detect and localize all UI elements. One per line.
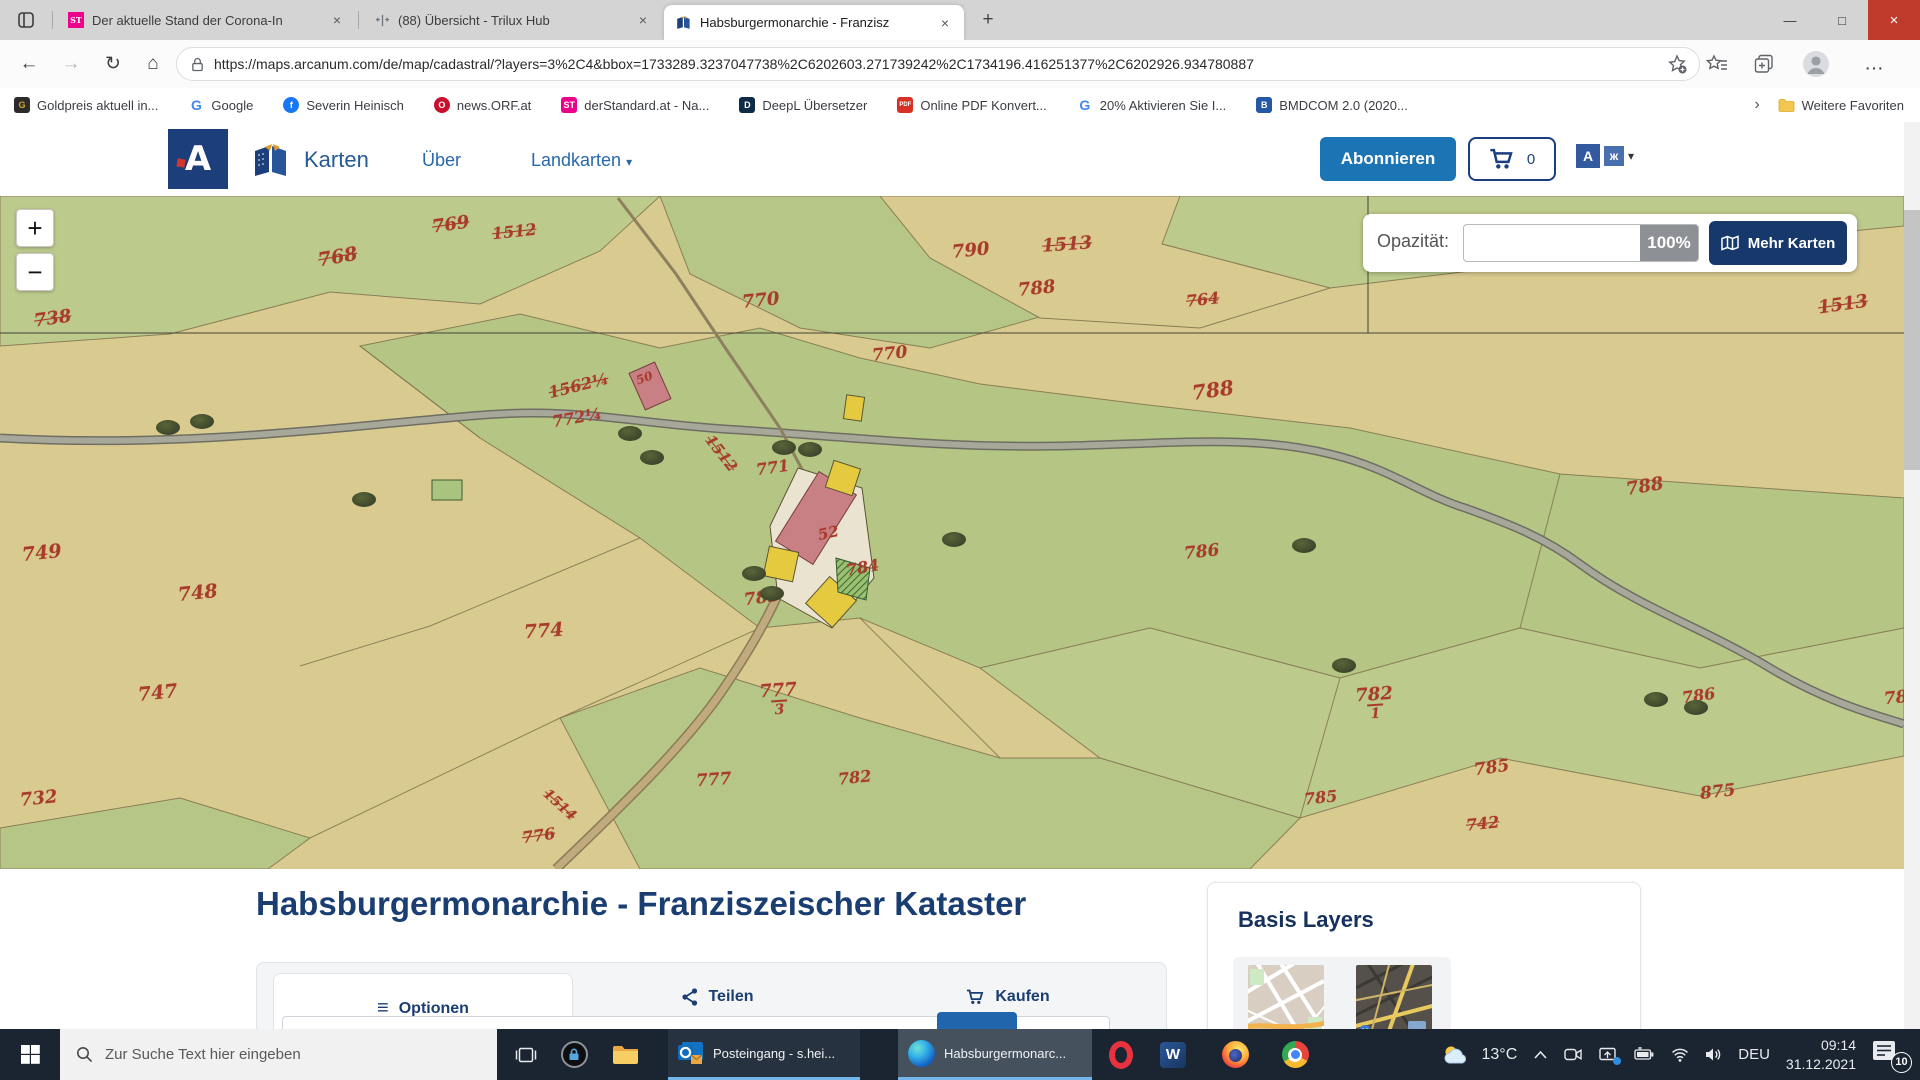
home-button[interactable]: ⌂ bbox=[138, 53, 168, 75]
bookmark-item[interactable]: fSeverin Heinisch bbox=[283, 97, 404, 113]
tab-separator bbox=[358, 11, 359, 29]
bookmark-item[interactable]: PDFOnline PDF Konvert... bbox=[897, 97, 1046, 113]
close-window-button[interactable]: × bbox=[1868, 0, 1920, 40]
taskbar-window-edge-active[interactable]: Habsburgermonarc... bbox=[898, 1029, 1092, 1080]
tray-expand-icon[interactable] bbox=[1533, 1049, 1548, 1060]
more-favorites-label: Weitere Favoriten bbox=[1802, 98, 1904, 113]
arcanum-logo[interactable]: A bbox=[168, 129, 228, 189]
url-text: https://maps.arcanum.com/de/map/cadastra… bbox=[214, 56, 1667, 72]
bookmark-favicon: PDF bbox=[897, 97, 913, 113]
bookmark-label: Google bbox=[211, 98, 253, 113]
tab-teilen-label: Teilen bbox=[708, 988, 753, 1006]
cart-icon bbox=[1489, 148, 1515, 170]
volume-icon[interactable] bbox=[1705, 1047, 1722, 1062]
taskbar-search-placeholder: Zur Suche Text hier eingeben bbox=[105, 1046, 301, 1063]
bookmark-favicon: G bbox=[14, 97, 30, 113]
page-scrollbar[interactable] bbox=[1904, 122, 1920, 1029]
site-header: A Karten Über Landkarten ▾ Abonnieren 0 … bbox=[0, 122, 1904, 196]
chevron-down-icon: ▾ bbox=[626, 155, 632, 169]
collections-icon[interactable] bbox=[1754, 54, 1774, 74]
reload-button[interactable]: ↻ bbox=[98, 53, 128, 76]
bookmark-item[interactable]: G20% Aktivieren Sie I... bbox=[1077, 97, 1226, 113]
arcanum-favicon bbox=[676, 15, 692, 31]
trilux-favicon bbox=[374, 12, 390, 28]
lock-icon bbox=[191, 57, 204, 72]
cart-icon bbox=[966, 989, 985, 1005]
bookmark-label: DeepL Übersetzer bbox=[762, 98, 867, 113]
language-switcher[interactable]: A ж ▾ bbox=[1576, 144, 1634, 168]
clock-date: 31.12.2021 bbox=[1786, 1055, 1856, 1074]
new-tab-button[interactable]: + bbox=[974, 7, 1002, 35]
bookmark-favicon: f bbox=[283, 97, 299, 113]
opacity-panel: Opazität: 100% Mehr Karten bbox=[1363, 214, 1857, 272]
wifi-icon[interactable] bbox=[1671, 1048, 1689, 1062]
taskbar-search[interactable]: Zur Suche Text hier eingeben bbox=[60, 1029, 497, 1080]
more-maps-label: Mehr Karten bbox=[1748, 235, 1836, 252]
taskbar-window-label: Posteingang - s.hei... bbox=[713, 1046, 835, 1061]
cadastral-map-art bbox=[0, 196, 1904, 869]
notification-center[interactable]: 10 bbox=[1872, 1040, 1906, 1070]
taskbar-window-label: Habsburgermonarc... bbox=[944, 1046, 1066, 1061]
bookmark-label: BMDCOM 2.0 (2020... bbox=[1279, 98, 1408, 113]
start-button[interactable] bbox=[0, 1029, 60, 1080]
weather-cloud-icon bbox=[1442, 1044, 1472, 1066]
map-icon bbox=[1721, 235, 1740, 251]
favorites-bar-icon[interactable] bbox=[1706, 54, 1728, 74]
bookmark-item[interactable]: GGoldpreis aktuell in... bbox=[14, 97, 158, 113]
bookmark-label: Online PDF Konvert... bbox=[920, 98, 1046, 113]
zoom-out-button[interactable]: − bbox=[16, 253, 54, 291]
bookmarks-bar: GGoldpreis aktuell in...GGooglefSeverin … bbox=[0, 88, 1920, 122]
opacity-value: 100% bbox=[1640, 225, 1698, 261]
chevron-down-icon: ▾ bbox=[1628, 149, 1634, 163]
bookmark-label: 20% Aktivieren Sie I... bbox=[1100, 98, 1226, 113]
more-maps-button[interactable]: Mehr Karten bbox=[1709, 221, 1847, 265]
tab-separator bbox=[52, 11, 53, 29]
tab-title: (88) Übersicht - Trilux Hub bbox=[398, 13, 626, 28]
tab-title: Habsburgermonarchie - Franzisz bbox=[700, 15, 928, 30]
bookmark-favicon: O bbox=[434, 97, 450, 113]
minimize-button[interactable]: — bbox=[1764, 0, 1816, 40]
bookmark-label: derStandard.at - Na... bbox=[584, 98, 709, 113]
tab-title: Der aktuelle Stand der Corona-In bbox=[92, 13, 320, 28]
battery-icon[interactable] bbox=[1634, 1047, 1655, 1062]
forward-button[interactable]: → bbox=[56, 53, 86, 75]
task-view-button[interactable] bbox=[503, 1029, 549, 1080]
opacity-label: Opazität: bbox=[1377, 231, 1449, 252]
zoom-in-button[interactable]: + bbox=[16, 209, 54, 247]
file-explorer-icon[interactable] bbox=[602, 1029, 648, 1080]
firefox-icon[interactable] bbox=[1212, 1029, 1258, 1080]
taskbar-window-outlook[interactable]: Posteingang - s.hei... bbox=[668, 1029, 860, 1080]
folder-icon bbox=[1778, 98, 1795, 112]
tab-optionen-label: Optionen bbox=[399, 1000, 469, 1018]
opacity-slider[interactable]: 100% bbox=[1463, 224, 1699, 262]
site-brand[interactable]: Karten bbox=[252, 143, 369, 177]
browser-tab-1[interactable]: ST Der aktuelle Stand der Corona-In × bbox=[56, 0, 356, 40]
close-tab-icon[interactable]: × bbox=[634, 11, 652, 29]
more-favorites-button[interactable]: Weitere Favoriten bbox=[1778, 98, 1904, 113]
language-icon: A bbox=[1576, 144, 1600, 168]
maximize-button[interactable]: □ bbox=[1816, 0, 1868, 40]
page-title: Habsburgermonarchie - Franziszeischer Ka… bbox=[256, 885, 1026, 923]
meet-now-icon[interactable] bbox=[1564, 1047, 1583, 1062]
search-icon bbox=[76, 1046, 93, 1063]
nav-landkarten-label: Landkarten bbox=[531, 150, 621, 170]
edge-icon bbox=[908, 1040, 935, 1067]
map-canvas[interactable]: 7387687691512770790151378876415137707881… bbox=[0, 196, 1904, 869]
bookmark-favicon: D bbox=[739, 97, 755, 113]
basis-layers-card: Basis Layers U bbox=[1207, 882, 1641, 1029]
cart-button[interactable]: 0 bbox=[1468, 137, 1556, 181]
bookmark-item[interactable]: Onews.ORF.at bbox=[434, 97, 531, 113]
settings-menu-icon[interactable]: … bbox=[1864, 53, 1885, 76]
bookmark-item[interactable]: GGoogle bbox=[188, 97, 253, 113]
close-tab-icon[interactable]: × bbox=[936, 14, 954, 32]
word-icon[interactable]: W bbox=[1150, 1029, 1196, 1080]
tab-actions-icon bbox=[17, 11, 35, 29]
weather-temp: 13°C bbox=[1482, 1046, 1518, 1064]
bookmarks-overflow-icon[interactable]: › bbox=[1754, 96, 1759, 114]
add-favorite-icon[interactable] bbox=[1667, 54, 1687, 74]
language-icon-2: ж bbox=[1604, 146, 1624, 166]
cart-count: 0 bbox=[1527, 151, 1535, 168]
windows-logo-icon bbox=[21, 1045, 40, 1064]
weather-widget[interactable]: 13°C bbox=[1442, 1044, 1518, 1066]
bookmark-label: news.ORF.at bbox=[457, 98, 531, 113]
clock[interactable]: 09:14 31.12.2021 bbox=[1786, 1036, 1856, 1074]
basis-layer-satellite-thumbnail[interactable]: U bbox=[1356, 965, 1432, 1029]
opera-icon[interactable] bbox=[1098, 1029, 1144, 1080]
tab-kaufen-label: Kaufen bbox=[995, 988, 1049, 1006]
nav-about[interactable]: Über bbox=[422, 150, 461, 171]
outlook-icon bbox=[678, 1041, 704, 1065]
maps-book-icon bbox=[252, 143, 292, 177]
notification-badge: 10 bbox=[1891, 1052, 1912, 1073]
close-tab-icon[interactable]: × bbox=[328, 11, 346, 29]
bookmark-favicon: G bbox=[1077, 97, 1093, 113]
basis-layers-title: Basis Layers bbox=[1238, 907, 1374, 933]
brand-label: Karten bbox=[304, 147, 369, 173]
share-icon bbox=[682, 988, 698, 1006]
bookmark-item[interactable]: DDeepL Übersetzer bbox=[739, 97, 867, 113]
clock-time: 09:14 bbox=[1786, 1036, 1856, 1055]
browser-toolbar: ← → ↻ ⌂ https://maps.arcanum.com/de/map/… bbox=[0, 40, 1920, 88]
basis-layers-list: U bbox=[1233, 957, 1451, 1029]
derstandard-favicon: ST bbox=[68, 12, 84, 28]
system-tray: 13°C DEU 09:14 31.12.2021 10 bbox=[1442, 1029, 1920, 1080]
logo-red-dot bbox=[176, 158, 185, 167]
keepass-icon[interactable] bbox=[551, 1029, 597, 1080]
cast-status-icon[interactable] bbox=[1599, 1047, 1618, 1063]
scrollbar-thumb[interactable] bbox=[1904, 210, 1920, 470]
bookmark-favicon: ST bbox=[561, 97, 577, 113]
basis-layer-street-thumbnail[interactable] bbox=[1248, 965, 1324, 1029]
profile-avatar[interactable] bbox=[1802, 50, 1830, 78]
options-submit-button[interactable] bbox=[937, 1012, 1017, 1029]
bookmark-label: Severin Heinisch bbox=[306, 98, 404, 113]
cast-status-dot bbox=[1613, 1057, 1621, 1065]
subscribe-button[interactable]: Abonnieren bbox=[1320, 137, 1456, 181]
chrome-icon[interactable] bbox=[1272, 1029, 1318, 1080]
bookmark-item[interactable]: STderStandard.at - Na... bbox=[561, 97, 709, 113]
browser-tab-active[interactable]: Habsburgermonarchie - Franzisz × bbox=[664, 5, 964, 40]
bookmark-favicon: B bbox=[1256, 97, 1272, 113]
back-button[interactable]: ← bbox=[14, 53, 44, 75]
tab-actions-button[interactable] bbox=[8, 6, 44, 34]
browser-tab-bar: ST Der aktuelle Stand der Corona-In × (8… bbox=[0, 0, 1920, 40]
bookmark-favicon: G bbox=[188, 97, 204, 113]
address-bar[interactable]: https://maps.arcanum.com/de/map/cadastra… bbox=[176, 47, 1700, 81]
bookmark-item[interactable]: BBMDCOM 2.0 (2020... bbox=[1256, 97, 1408, 113]
windows-taskbar: Zur Suche Text hier eingeben Posteingang… bbox=[0, 1029, 1920, 1080]
nav-landkarten[interactable]: Landkarten ▾ bbox=[531, 150, 632, 171]
browser-tab-2[interactable]: (88) Übersicht - Trilux Hub × bbox=[362, 0, 662, 40]
bookmark-label: Goldpreis aktuell in... bbox=[37, 98, 158, 113]
page-content: Habsburgermonarchie - Franziszeischer Ka… bbox=[0, 869, 1904, 1029]
keyboard-language[interactable]: DEU bbox=[1738, 1046, 1770, 1063]
